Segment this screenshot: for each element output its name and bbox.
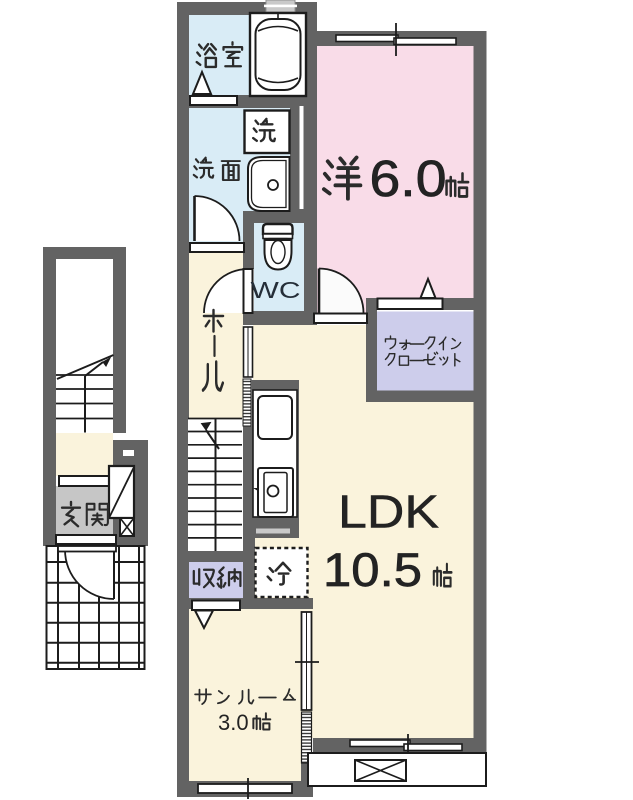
svg-text:LDK: LDK — [338, 486, 439, 538]
svg-text:10.5: 10.5 — [323, 543, 422, 596]
svg-text:6.0: 6.0 — [370, 150, 447, 207]
svg-text:WC: WC — [251, 277, 301, 303]
svg-text:3.0: 3.0 — [218, 710, 249, 735]
